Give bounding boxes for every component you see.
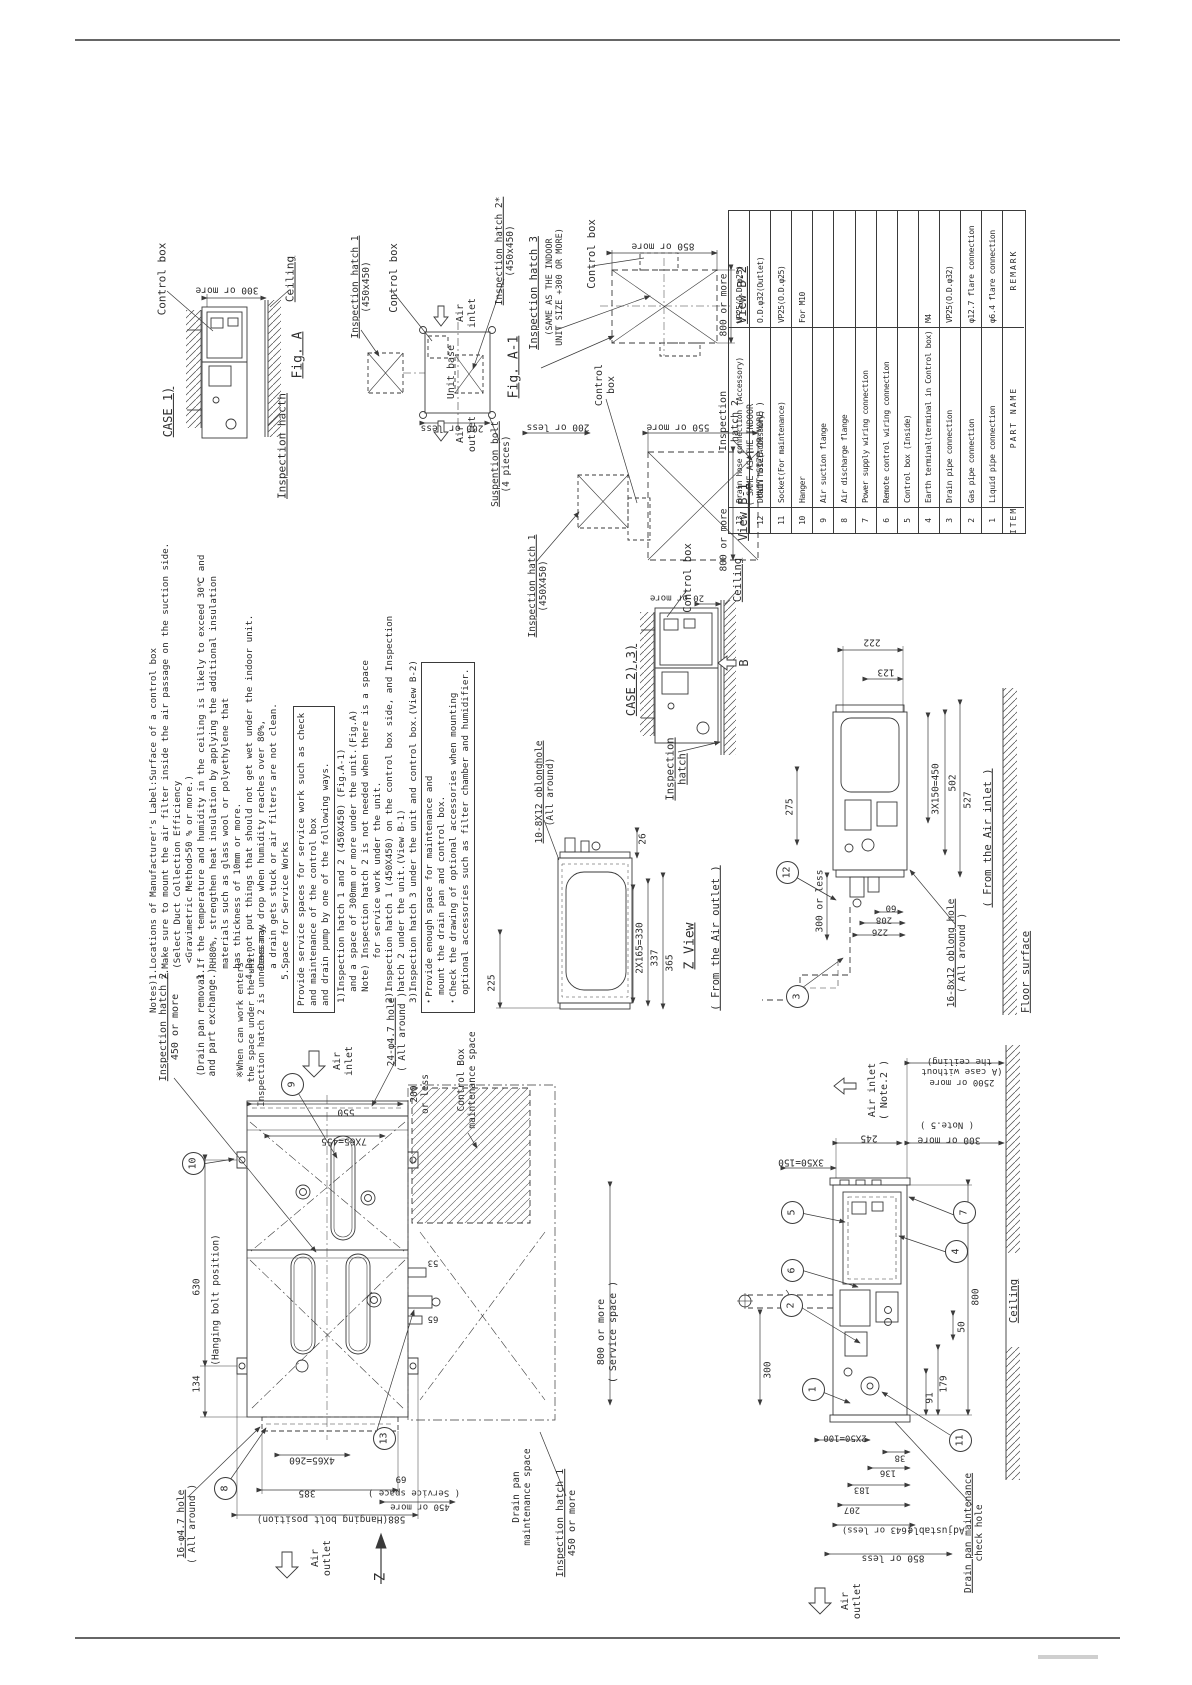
inspection-hatch2-plan-label: Inspection hatch 2450 or more (158, 972, 182, 1082)
note-list-line: hatch 2 under the unit.(View B-1) (396, 423, 408, 1003)
dim-208: 208 (875, 914, 893, 925)
z-arrow-label: Z (373, 1572, 390, 1582)
dim-850-or-less: 850 or less (861, 1552, 926, 1563)
fig-a1-plan-view (361, 279, 504, 443)
dim-60: 60 (885, 902, 898, 913)
parts-table-header-cell: ITEM (1003, 507, 1024, 533)
note-line: 3.If the temperature and humidity in the… (196, 423, 208, 1013)
dim-643-or-less: (643 or less) (841, 1524, 913, 1535)
view-b-arrow-label: B (737, 658, 751, 667)
worker-note: ※When can work enters the space under th… (236, 921, 268, 1118)
control-box-label-viewb1: Controlbox (594, 363, 618, 407)
control-box-label-viewb2: Control box (586, 218, 598, 290)
note-list-line: 3)Inspection hatch 3 under the unit and … (408, 423, 420, 1003)
note-line: (Select Duct Collection Efficiency (172, 423, 184, 1013)
balloon-item-2: 2 (780, 1294, 803, 1317)
dim-26: 26 (637, 832, 648, 845)
dim-800-side: 800 (970, 1287, 981, 1306)
control-box-maintenance-label: Control Boxmaintenance space (456, 1030, 478, 1129)
case23-title: CASE 2),3) (624, 643, 638, 717)
parts-table-cell (813, 213, 833, 327)
z-view (496, 820, 663, 1009)
drain-pan-check-hole-label: Drain pan maintenancecheck hole (963, 1472, 985, 1594)
service-space-note-box: Provide service spaces for service work … (293, 706, 335, 1013)
dim-91: 91 (924, 1391, 935, 1404)
note-list-line: 1)Inspection hatch 1 and 2 (450X450) (Fi… (336, 423, 348, 1003)
note-box1-line: Provide service spaces for service work … (296, 713, 308, 1006)
dim-65: 65 (427, 1313, 440, 1324)
dim-245: 245 (859, 1132, 878, 1143)
parts-table-row: 8Air discharge flange (834, 211, 855, 533)
balloon-item-1: 1 (802, 1378, 825, 1401)
dim-800-service: 800 or more( Service space ) (596, 1280, 620, 1384)
dim-123: 123 (876, 666, 895, 677)
fig-a1-title: Fig. A-1 (506, 335, 521, 400)
z-view-title: Z View (682, 922, 697, 971)
dim-527: 527 (962, 790, 973, 809)
view-b2-title: View B-2 (735, 265, 749, 325)
illegible-footnote-text (1038, 1655, 1098, 1659)
balloon-item-3: 3 (786, 985, 809, 1008)
parts-table-cell: Hanger (792, 327, 812, 507)
parts-table-cell: Liquid pipe connection (982, 327, 1002, 507)
balloon-item-7: 7 (953, 1201, 976, 1224)
drain-pan-maintenance-label: Drain panmaintenance space (511, 1447, 533, 1546)
dim-207: 207 (843, 1504, 861, 1515)
note-list-line: 2)Inspection hatch 1 (450X450) on the co… (384, 423, 396, 1003)
air-inlet-label-side: Air inlet( Note.2 ) (867, 1059, 891, 1121)
dim-53: 53 (427, 1257, 440, 1268)
note-box1-line: and maintenance of the control box (308, 713, 320, 1006)
parts-table-cell: 4 (919, 507, 939, 533)
parts-table-row: 11Socket(For maintenance)VP25(O.D.φ25) (771, 211, 792, 533)
dim-2x50: 2X50=100 (822, 1432, 867, 1443)
dim-550-or-more: 550 or more (646, 421, 711, 432)
note-line: a drain gets stuck or air filters are no… (268, 423, 280, 1013)
dim-200-or-less-plan: 200or less (409, 1073, 431, 1115)
air-inlet-arrow-figa1 (434, 306, 448, 326)
inspection-hatch-label-case23: Inspectionhatch (665, 736, 690, 801)
parts-table-cell (856, 213, 876, 327)
case1-side-view (167, 291, 288, 438)
hatch3-same-note: (SAME AS THE INDOORUNIT SIZE +300 OR MOR… (545, 227, 565, 347)
air-outlet-arrow-plan (276, 1552, 298, 1578)
parts-table-cell: 6 (877, 507, 897, 533)
parts-table-header-cell: REMARK (1003, 213, 1024, 327)
balloon-item-4: 4 (945, 1240, 968, 1263)
oblong-hole-10-label: 10-8X12 oblonghole(All around) (534, 740, 556, 845)
parts-table-cell (834, 213, 854, 327)
dim-226: 226 (871, 926, 889, 937)
balloon-item-5: 5 (781, 1201, 804, 1224)
parts-table-cell: For M10 (792, 213, 812, 327)
balloon-item-10: 10 (182, 1152, 205, 1175)
parts-table-cell (877, 213, 897, 327)
note-list-line: and a space of 300mm or more under the u… (348, 423, 360, 1003)
parts-table-row: 3Drain pipe connectionVP25(O.D.φ32) (940, 211, 961, 533)
inspection-hatch1-plan-label: Inspection hatch 1450 or more (555, 1468, 579, 1578)
dim-800-or-more-b1: 800 or more (718, 508, 729, 573)
air-outlet-label-side: Airoutlet (840, 1582, 864, 1620)
drain-pan-removal-note: (Drain pan removal and part exchange.) (196, 967, 218, 1083)
note-list-line: for service work under the unit. (372, 423, 384, 1003)
dim-502: 502 (947, 773, 958, 792)
parts-table-row: 4Earth terminal(terminal in Control box)… (919, 211, 940, 533)
inspection-hatch2-star-label: Inspection hatch 2*(450x450) (494, 196, 516, 307)
inspection-hacth-label-case1: Inspection hacth (277, 392, 290, 500)
parts-table-cell: Air discharge flange (834, 327, 854, 507)
dim-275: 275 (784, 797, 795, 816)
note-box2-line: ・Provide enough space for maintenance an… (424, 669, 436, 1006)
notes-block: Notes)1.Locations of Manufacturer's Labe… (148, 423, 478, 1013)
case1-title: CASE 1) (161, 386, 175, 439)
control-box-label-figa1: Control box (388, 242, 400, 314)
air-outlet-label-plan: Airoutlet (310, 1539, 334, 1577)
parts-table-row: 7Power supply wiring connection (856, 211, 877, 533)
parts-table-row: 1Liquid pipe connectionφ6.4 flare connec… (982, 211, 1003, 533)
dim-222: 222 (862, 636, 881, 647)
unit-base-label: Unit base (446, 344, 458, 400)
parts-table-cell: Socket(For maintenance) (771, 327, 791, 507)
parts-table-cell: φ6.4 flare connection (982, 213, 1002, 327)
note-box1-line: and drain pump by one of the following w… (320, 713, 332, 1006)
ceiling-label-case23: Ceiling (732, 557, 744, 603)
parts-table-cell: Earth terminal(terminal in Control box) (919, 327, 939, 507)
air-outlet-arrow-side (809, 1588, 831, 1614)
drawing-sheet: Notes)1.Locations of Manufacturer's Labe… (0, 0, 1192, 1685)
dim-850-or-more: 850 or more (631, 240, 696, 251)
air-outlet-label-figa1: Airoutlet (455, 415, 479, 453)
parts-table-cell (898, 213, 918, 327)
parts-table-cell: 12 (750, 507, 770, 533)
note-line: Notes)1.Locations of Manufacturer's Labe… (148, 423, 160, 1013)
note-box2-line: ・Check the drawing of optional accessori… (448, 669, 460, 1006)
parts-table-cell: Control box (Inside) (898, 327, 918, 507)
inspection-hatch1-label-b1: Inspection hatch 1(450X450) (527, 534, 549, 639)
dim-2x165: 2X165=330 (634, 921, 645, 974)
adjustable-label: Adjustable (906, 1524, 965, 1535)
ceiling-label-side: Ceiling (1008, 1278, 1020, 1324)
dim-69: 69 (395, 1473, 408, 1484)
parts-table-cell: VP25(O.D.φ32) (940, 213, 960, 327)
dim-337: 337 (649, 948, 660, 967)
parts-table-cell: 1 (982, 507, 1002, 533)
view-b2 (541, 250, 735, 368)
dim-179: 179 (938, 1374, 949, 1393)
dim-2500: 2500 or more(A case without the ceiling) (920, 1055, 1003, 1087)
parts-table-cell: Air suction flange (813, 327, 833, 507)
parts-table-cell: 3 (940, 507, 960, 533)
balloon-item-8: 8 (214, 1477, 237, 1500)
air-inlet-label-plan: Airinlet (332, 1045, 356, 1077)
note-line: 5.Space for Service Works (280, 423, 292, 1013)
dim-200-or-less-figa1: 200 or less (420, 422, 485, 433)
dim-183: 183 (853, 1484, 871, 1495)
parts-table-row: 2Gas pipe connectionφ12.7 flare connecti… (961, 211, 982, 533)
dim-225: 225 (486, 973, 497, 992)
balloon-item-12: 12 (776, 861, 799, 884)
dim-136: 136 (879, 1467, 897, 1478)
parts-table-cell: 11 (771, 507, 791, 533)
floor-surface-label: Floor surface (1020, 930, 1032, 1014)
dim-300-or-more-case1: 300 or more (195, 284, 260, 295)
air-inlet-arrow-side (834, 1078, 856, 1094)
dim-20-or-more: 20 or more (649, 592, 705, 603)
parts-table-cell: 9 (813, 507, 833, 533)
parts-table-header-row: ITEMPART NAMEREMARK (1003, 211, 1024, 533)
parts-table-cell: 8 (834, 507, 854, 533)
balloon-item-11: 11 (949, 1429, 972, 1452)
dim-7x65: 7X65=455 (320, 1135, 368, 1146)
parts-table-cell: O.D.φ32(Outlet) (750, 213, 770, 327)
view-b1-title: View B-1 (736, 482, 750, 542)
parts-table-cell: 2 (961, 507, 981, 533)
dim-200-or-less-b1: 200 or less (526, 421, 591, 432)
hole-16-label: 16-φ4.7 hole( All around ) (176, 1483, 198, 1565)
dim-800-or-more-b2: 800 or more (718, 273, 729, 338)
parts-table-row: 5Control box (Inside) (898, 211, 919, 533)
dim-134: 134 (191, 1374, 202, 1393)
hanging-bolt-position-label: (Hanging bolt position) (210, 1233, 221, 1367)
dim-300-side: 300 (762, 1360, 773, 1379)
note-line: <Gravimetric Method>50 % or more.) (184, 423, 196, 1013)
note-line: 2.Make sure to mount the air filter insi… (160, 423, 172, 1013)
dim-3x50: 3X50=150 (777, 1156, 825, 1167)
parts-table-cell: φ12.7 flare connection (961, 213, 981, 327)
dim-300-or-more-side: 300 or more (917, 1134, 982, 1145)
parts-table-cell: Power supply wiring connection (856, 327, 876, 507)
dim-550: 550 (336, 1106, 355, 1117)
suspention-bolt-label: Suspention bolt(4 pieces) (490, 420, 512, 508)
parts-table-header-cell: PART NAME (1003, 327, 1024, 507)
dim-630: 630 (191, 1277, 202, 1296)
service-space-options-list: 1)Inspection hatch 1 and 2 (450X450) (Fi… (336, 423, 420, 1003)
inspection-hatch3-label: Inspection hatch 3 (528, 235, 540, 351)
from-air-inlet-label: ( From the Air inlet ) (982, 767, 994, 908)
parts-table-cell: 10 (792, 507, 812, 533)
balloon-item-13: 13 (373, 1427, 396, 1450)
parts-table-cell: 5 (898, 507, 918, 533)
dim-300-or-less: 300 or less (814, 869, 825, 934)
parts-table-cell: Gas pipe connection (961, 327, 981, 507)
parts-table-cell: 7 (856, 507, 876, 533)
dim-4x65: 4X65=260 (288, 1454, 336, 1465)
maintenance-note-box: ・Provide enough space for maintenance an… (421, 662, 475, 1013)
air-inlet-view (762, 646, 1017, 1015)
note-list-line: Note) Inspection hatch 2 is not needed w… (360, 423, 372, 1003)
note-box2-line: optional accessories such as filter cham… (460, 669, 472, 1006)
oblong-hole-16-8x12-label: 16-8x12 oblong hole( All around ) (946, 898, 968, 1009)
inspection-hatch1-figa1-label: Inspection hatch 1(450x450) (350, 235, 372, 340)
fig-a-title: Fig. A (290, 331, 305, 380)
parts-table: 13Drain hose connection (Accessory)VP25(… (728, 212, 1024, 534)
dim-365: 365 (664, 953, 675, 972)
ceiling-label-case1: Ceiling (285, 255, 298, 303)
dim-38: 38 (894, 1452, 907, 1463)
control-box-label-case1: Control box (157, 242, 170, 317)
air-inlet-label-figa1: Airinlet (455, 297, 479, 329)
air-inlet-arrow-plan (303, 1051, 325, 1077)
dim-385: 385 (297, 1487, 316, 1498)
parts-table-row: 9Air suction flange (813, 211, 834, 533)
parts-table-cell: Remote control wiring connection (877, 327, 897, 507)
note-line: RH80%, strengthen heat insulation by app… (208, 423, 220, 1013)
hole-24-label: 24-φ4.7 hole( All around ) (386, 991, 408, 1073)
parts-table-cell: M4 (919, 213, 939, 327)
parts-table-row: 6Remote control wiring connection (877, 211, 898, 533)
inspection-hatch2-label-b1: Inspectionhatch 2 (718, 390, 742, 452)
service-space-note: ( Service space ) (367, 1487, 461, 1498)
dim-3x150: 3X150=450 (930, 762, 941, 815)
balloon-item-6: 6 (781, 1259, 804, 1282)
parts-table-row: 10HangerFor M10 (792, 211, 813, 533)
note-box2-line: mount the drain pan and control box. (436, 669, 448, 1006)
balloon-item-9: 9 (281, 1073, 304, 1096)
dim-588: 588(Hanging bolt position) (256, 1513, 407, 1524)
control-box-label-case23: Control box (682, 542, 694, 614)
parts-table-cell: VP25(O.D.φ25) (771, 213, 791, 327)
note-line: materials such as glass wool or polyethy… (220, 423, 232, 1013)
note5-label: ( Note.5 ) (919, 1119, 975, 1130)
case23-side-view (640, 590, 736, 755)
from-air-outlet-label: ( From the Air outlet ) (710, 864, 722, 1011)
dim-50: 50 (956, 1320, 967, 1333)
parts-table-cell: Drain pipe connection (940, 327, 960, 507)
dim-450-or-more-plan: 450 or more (389, 1501, 451, 1512)
